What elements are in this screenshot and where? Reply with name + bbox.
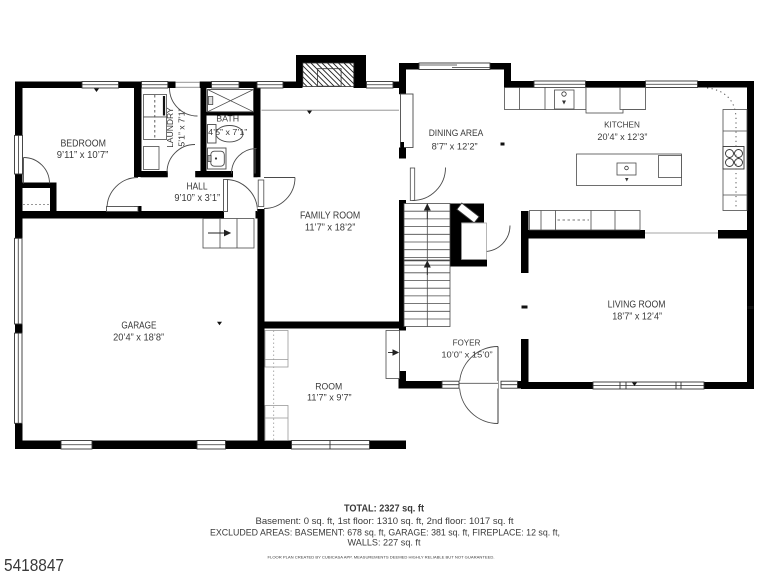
svg-text:BATH: BATH [216,114,239,124]
svg-text:9’11” x 10’7”: 9’11” x 10’7” [57,150,109,161]
svg-text:FOYER: FOYER [453,338,481,348]
svg-text:GARAGE: GARAGE [121,321,157,332]
svg-text:5’1” x 7’1”: 5’1” x 7’1” [176,108,186,146]
svg-text:WALLS: 227 sq. ft: WALLS: 227 sq. ft [348,538,421,548]
svg-text:9’10” x 3’1”: 9’10” x 3’1” [174,193,220,204]
svg-text:LAUNDRY: LAUNDRY [165,107,175,148]
svg-text:11’7” x 9’7”: 11’7” x 9’7” [307,393,352,404]
svg-text:8’7” x 12’2”: 8’7” x 12’2” [432,141,478,151]
svg-text:TOTAL: 2327 sq. ft: TOTAL: 2327 sq. ft [344,504,425,515]
svg-text:5418847: 5418847 [4,555,64,575]
svg-text:20’4” x 12’3”: 20’4” x 12’3” [597,132,647,143]
svg-text:DINING AREA: DINING AREA [429,128,484,138]
svg-text:FAMILY ROOM: FAMILY ROOM [300,210,360,221]
svg-text:FLOOR PLAN CREATED BY CUBICASA: FLOOR PLAN CREATED BY CUBICASA APP. MEAS… [268,556,495,560]
svg-text:HALL: HALL [186,182,208,193]
svg-text:LIVING ROOM: LIVING ROOM [608,300,666,311]
svg-text:11’7” x 18’2”: 11’7” x 18’2” [305,223,355,234]
svg-text:BEDROOM: BEDROOM [60,139,106,150]
svg-text:Basement: 0 sq. ft, 1st floor:: Basement: 0 sq. ft, 1st floor: 1310 sq. … [256,516,514,526]
svg-text:18’7” x 12’4”: 18’7” x 12’4” [612,311,662,322]
svg-text:20’4” x 18’8”: 20’4” x 18’8” [113,332,164,343]
svg-text:EXCLUDED AREAS: BASEMENT: 678: EXCLUDED AREAS: BASEMENT: 678 sq. ft, GA… [210,528,560,538]
svg-text:KITCHEN: KITCHEN [604,120,640,130]
svg-text:4’5” x 7’1”: 4’5” x 7’1” [208,127,247,137]
svg-text:ROOM: ROOM [315,381,342,392]
svg-text:10’0” x 15’0”: 10’0” x 15’0” [441,350,492,360]
